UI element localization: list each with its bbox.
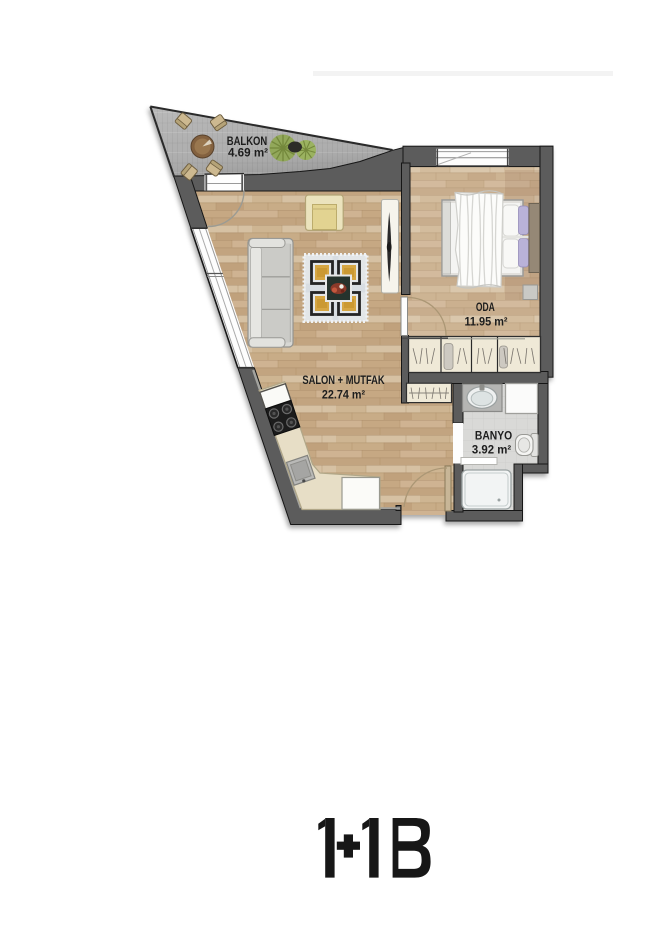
svg-text:ODA: ODA (476, 302, 495, 315)
svg-text:22.74 m²: 22.74 m² (322, 389, 365, 402)
svg-text:SALON + MUTFAK: SALON + MUTFAK (302, 374, 385, 387)
svg-text:3.92 m²: 3.92 m² (472, 443, 511, 456)
svg-text:4.69 m²: 4.69 m² (228, 145, 268, 159)
svg-text:11.95 m²: 11.95 m² (464, 316, 507, 329)
svg-text:BANYO: BANYO (475, 430, 513, 443)
